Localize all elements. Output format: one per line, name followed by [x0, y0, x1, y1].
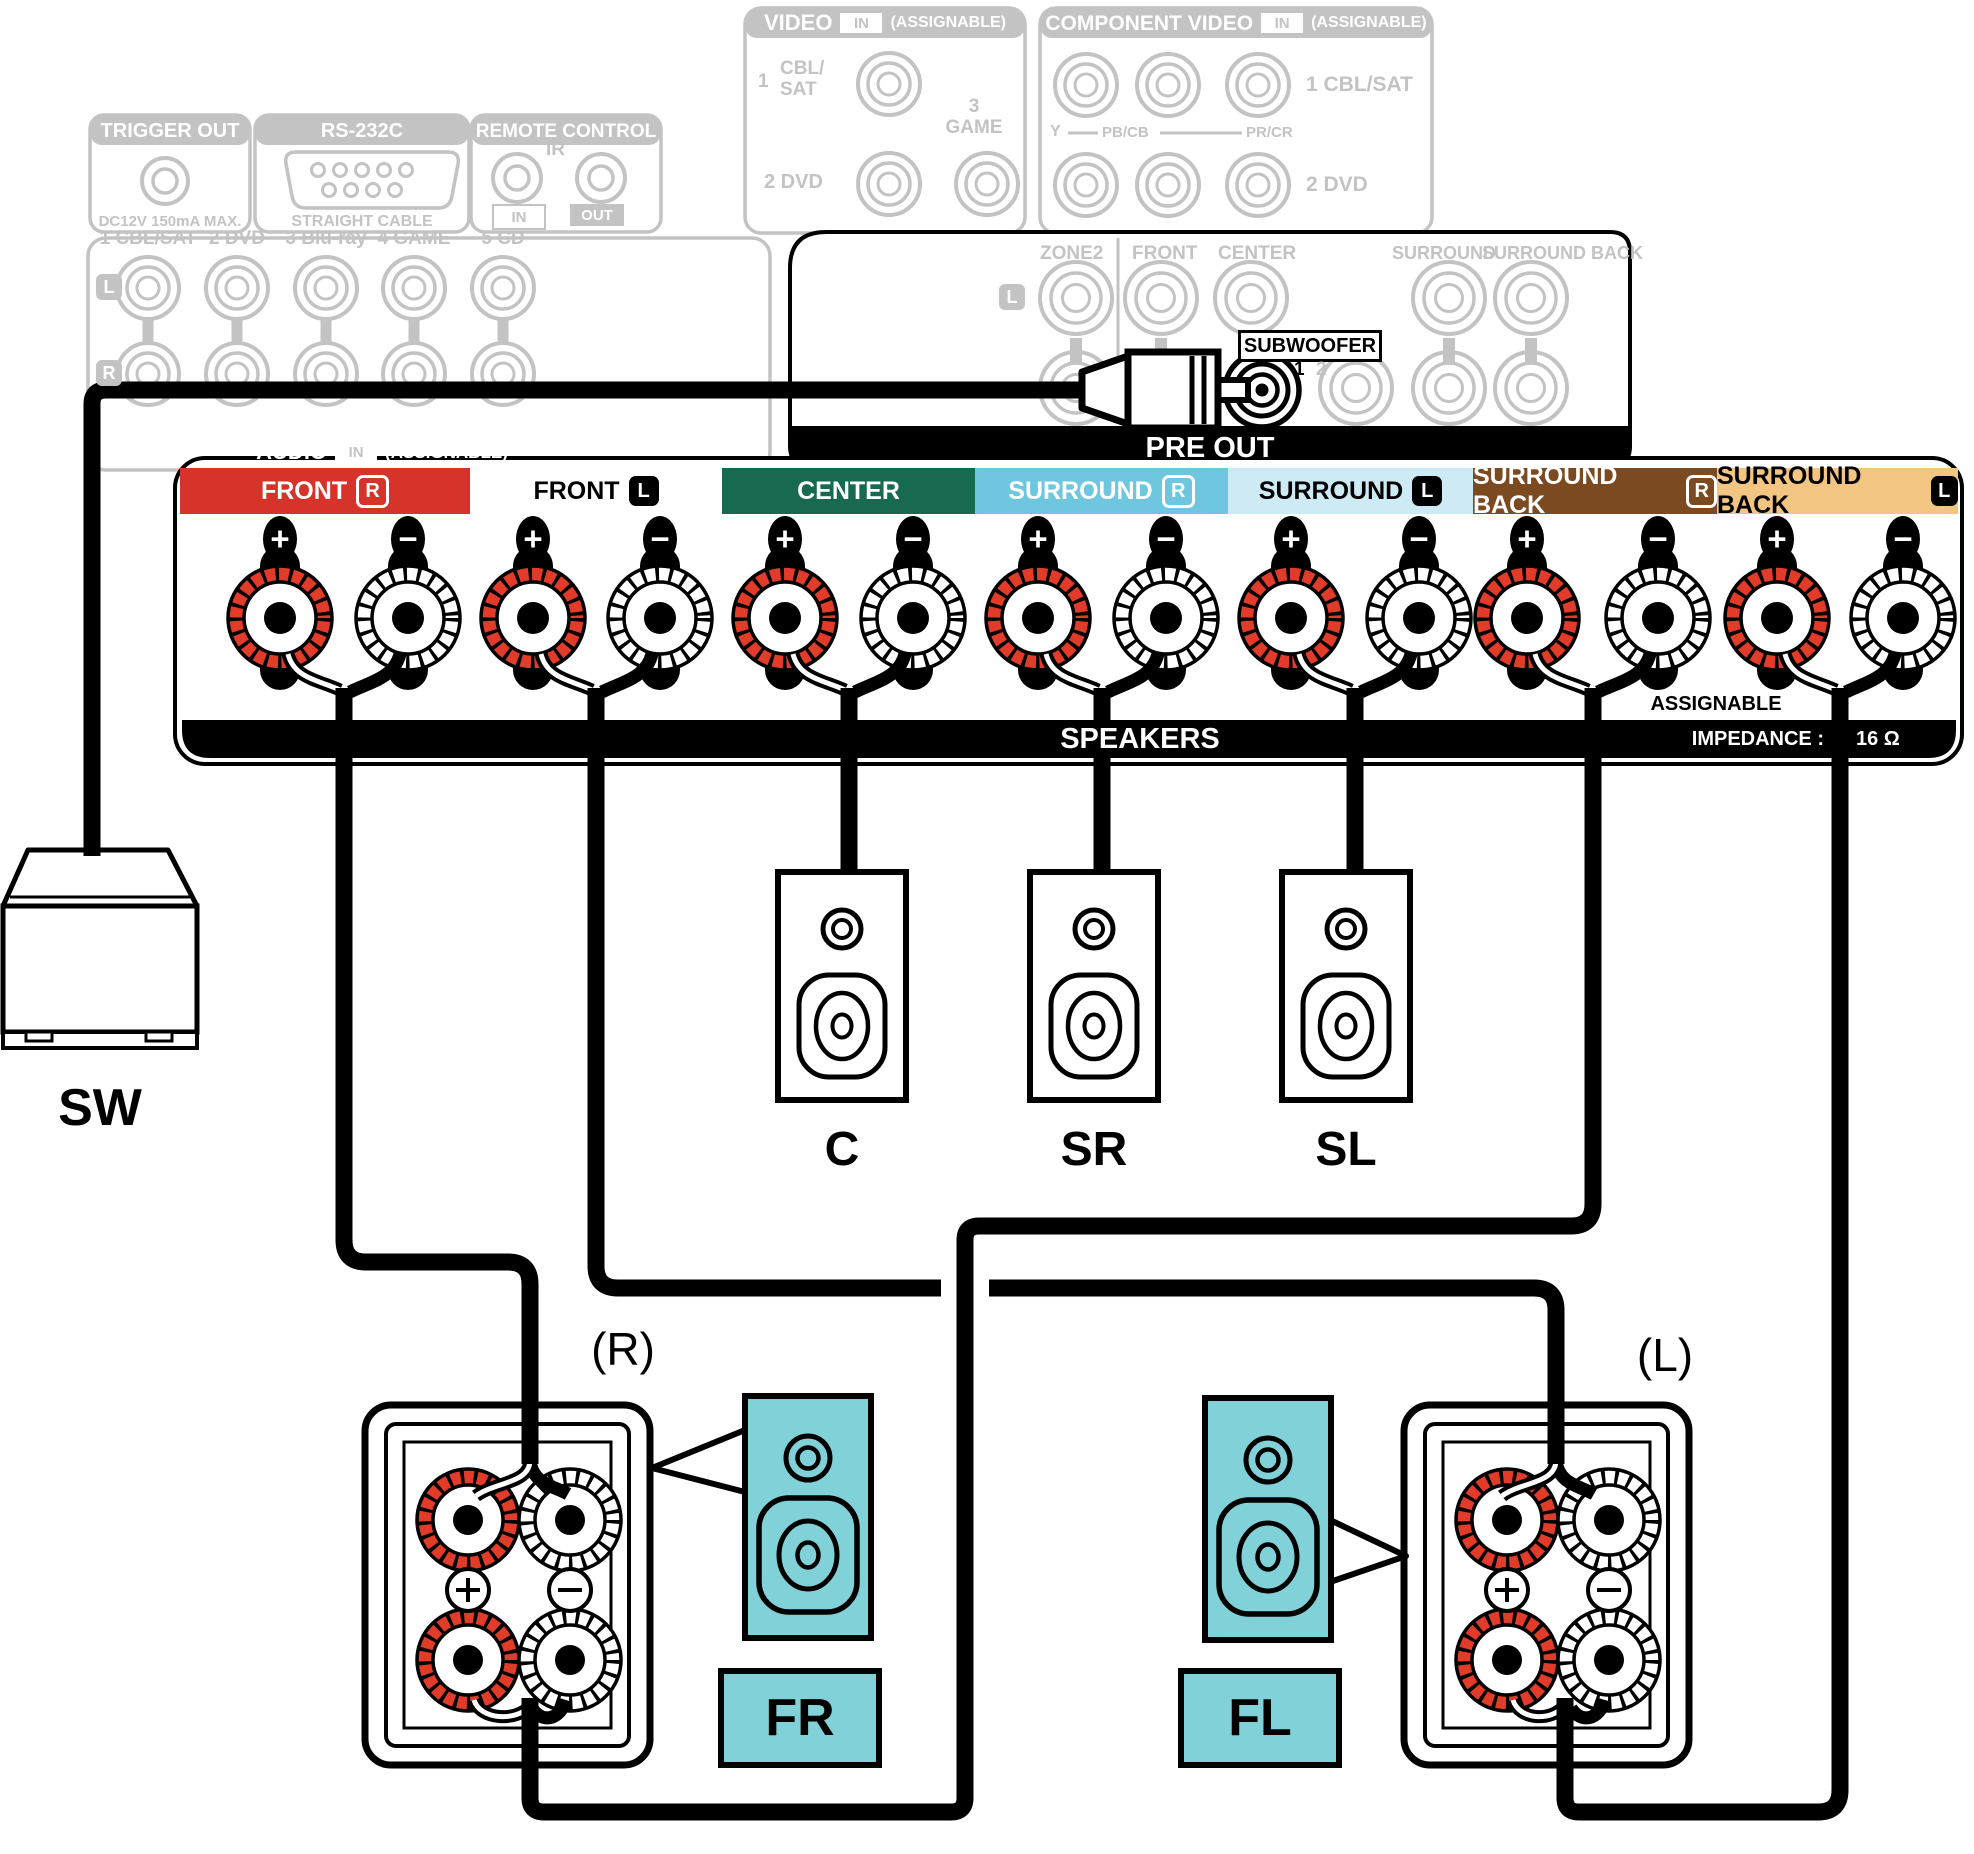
preout-surround-label: SURROUND	[1392, 244, 1496, 262]
preout-zone2-label: ZONE2	[1040, 244, 1103, 263]
terminal-label-text: FRONT	[533, 477, 619, 506]
channel-side-badge: R	[1686, 475, 1717, 508]
video-in-assignable: (ASSIGNABLE)	[890, 15, 1006, 31]
preout-front-label: FRONT	[1132, 244, 1197, 263]
video-in-in: IN	[840, 13, 882, 33]
audio-in-right-badge: R	[96, 360, 122, 386]
preout-bar-title: PRE OUT	[790, 434, 1630, 463]
remote-in-label: IN	[492, 204, 546, 230]
audio-in-ch1: 1 CBL/SAT	[95, 229, 201, 248]
channel-side-badge: R	[1162, 475, 1195, 508]
component-video-assignable: (ASSIGNABLE)	[1311, 15, 1427, 31]
preout-surround-back-label: SURROUND BACK	[1482, 244, 1643, 262]
terminal-label-text: SURROUND	[1008, 477, 1152, 506]
audio-in-left-badge: L	[96, 274, 122, 300]
subwoofer-label: SUBWOOFER	[1238, 330, 1382, 362]
trigger-out-caption: DC12V 150mA MAX.	[90, 214, 250, 229]
component-pr-label: PR/CR	[1246, 125, 1293, 140]
front-right-speaker-label: FR	[718, 1668, 882, 1768]
channel-side-badge: R	[356, 475, 389, 508]
post-plus-badge: +	[263, 516, 297, 562]
center-speaker-label: C	[778, 1126, 906, 1174]
post-plus-badge: +	[1510, 516, 1544, 562]
right-channel-mark: (R)	[568, 1326, 678, 1372]
preout-center-label: CENTER	[1218, 244, 1296, 263]
diagram-graphics	[0, 0, 1974, 1854]
post-plus-badge: +	[768, 516, 802, 562]
front-left-speaker-label: FL	[1178, 1668, 1342, 1768]
terminal-label-surround-l: SURROUNDL	[1228, 468, 1473, 514]
remote-control-title: REMOTE CONTROL	[471, 122, 661, 141]
subwoofer-2: 2	[1316, 360, 1327, 379]
terminal-label-text: SURROUND BACK	[1717, 462, 1922, 520]
terminal-label-front-r: FRONTR	[180, 468, 470, 514]
impedance-label: IMPEDANCE :	[1640, 729, 1824, 749]
component-row1-label: 1 CBL/SAT	[1306, 74, 1413, 95]
channel-side-badge: L	[1412, 476, 1442, 506]
post-plus-badge: +	[1760, 516, 1794, 562]
terminal-label-surround-back-r: SURROUND BACKR	[1473, 468, 1717, 514]
subwoofer-1: 1	[1294, 360, 1305, 379]
trigger-out-title: TRIGGER OUT	[90, 121, 250, 141]
video-jack2-label: 2 DVD	[764, 172, 823, 192]
surround-right-speaker-label: SR	[1030, 1126, 1158, 1174]
audio-in-ch5: 5 CD	[477, 229, 529, 248]
terminal-label-text: SURROUND BACK	[1473, 462, 1677, 520]
impedance-value: 16 Ω	[1856, 729, 1900, 749]
audio-in-bar-in: IN	[335, 442, 377, 462]
channel-side-badge: L	[629, 476, 659, 506]
terminal-label-center: CENTER	[722, 468, 975, 514]
left-channel-mark: (L)	[1610, 1332, 1720, 1378]
video-in-title: VIDEO	[764, 12, 832, 34]
terminal-label-text: CENTER	[797, 477, 900, 506]
rs232c-title: RS-232C	[255, 121, 469, 141]
component-video-in: IN	[1261, 13, 1303, 33]
preout-left-badge: L	[999, 284, 1025, 310]
assignable-label: ASSIGNABLE	[1642, 694, 1790, 714]
audio-in-bar-title: AUDIO	[256, 441, 327, 463]
audio-in-ch3: 3 Blu-ray	[283, 229, 369, 248]
terminal-label-text: FRONT	[261, 477, 347, 506]
remote-out-label: OUT	[570, 204, 624, 226]
post-plus-badge: +	[1021, 516, 1055, 562]
video-jack3-label: 3GAME	[938, 96, 1010, 138]
terminal-label-surround-r: SURROUNDR	[975, 468, 1228, 514]
audio-in-ch4: 4 GAME	[376, 229, 452, 248]
post-minus-badge: −	[391, 516, 425, 562]
post-plus-badge: +	[516, 516, 550, 562]
post-minus-badge: −	[1641, 516, 1675, 562]
component-pb-label: PB/CB	[1102, 125, 1149, 140]
post-minus-badge: −	[643, 516, 677, 562]
video-jack1-num: 1	[758, 72, 769, 91]
component-video-header: COMPONENT VIDEO IN (ASSIGNABLE)	[1040, 10, 1432, 36]
surround-left-speaker-label: SL	[1282, 1126, 1410, 1174]
terminal-label-text: SURROUND	[1259, 477, 1403, 506]
ir-label: IR	[546, 140, 565, 159]
rear-panel-wiring-diagram: TRIGGER OUT RS-232C REMOTE CONTROL DC12V…	[0, 0, 1974, 1854]
video-jack1-label: CBL/SAT	[780, 58, 824, 100]
terminal-label-front-l: FRONTL	[470, 468, 722, 514]
post-minus-badge: −	[1149, 516, 1183, 562]
video-in-header: VIDEO IN (ASSIGNABLE)	[745, 10, 1025, 36]
audio-in-bar-assignable: (ASSIGNABLE)	[385, 444, 508, 461]
post-minus-badge: −	[1402, 516, 1436, 562]
channel-side-badge: L	[1931, 476, 1958, 506]
terminal-label-surround-back-l: SURROUND BACKL	[1717, 468, 1958, 514]
post-minus-badge: −	[896, 516, 930, 562]
audio-in-ch2: 2 DVD	[203, 229, 271, 248]
component-row2-label: 2 DVD	[1306, 174, 1368, 195]
component-y-label: Y	[1050, 124, 1061, 140]
post-plus-badge: +	[1274, 516, 1308, 562]
speakers-bar-title: SPEAKERS	[1010, 725, 1270, 754]
post-minus-badge: −	[1886, 516, 1920, 562]
component-video-title: COMPONENT VIDEO	[1045, 13, 1253, 34]
subwoofer-speaker-label: SW	[30, 1082, 170, 1134]
audio-in-bar: AUDIO IN (ASSIGNABLE)	[172, 439, 592, 465]
